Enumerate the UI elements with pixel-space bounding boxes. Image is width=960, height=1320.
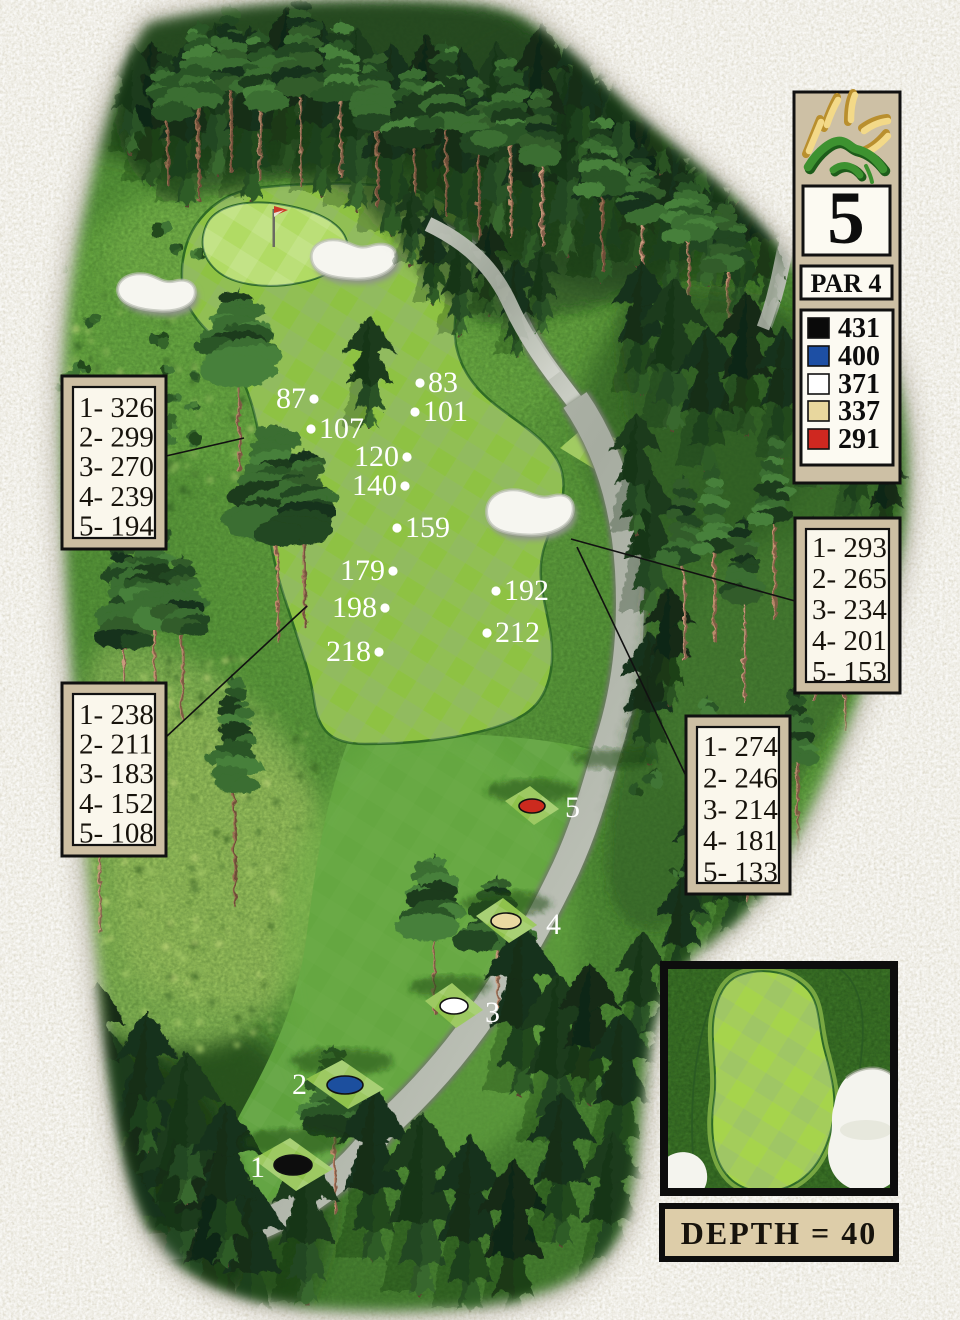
svg-text:192: 192 — [504, 574, 549, 607]
svg-text:159: 159 — [405, 511, 450, 544]
svg-text:1: 1 — [250, 1151, 265, 1184]
svg-text:3: 3 — [485, 996, 500, 1029]
svg-text:400: 400 — [838, 341, 880, 372]
svg-text:3- 183: 3- 183 — [79, 758, 154, 790]
svg-text:5: 5 — [827, 177, 865, 260]
svg-text:179: 179 — [340, 554, 385, 587]
svg-text:2: 2 — [292, 1068, 307, 1101]
svg-text:PAR 4: PAR 4 — [810, 269, 881, 298]
svg-text:4- 201: 4- 201 — [812, 625, 887, 657]
svg-text:4- 181: 4- 181 — [703, 825, 778, 857]
svg-text:5- 108: 5- 108 — [79, 817, 154, 849]
svg-text:2- 299: 2- 299 — [79, 422, 154, 454]
svg-text:2- 211: 2- 211 — [79, 729, 153, 761]
svg-text:1- 293: 1- 293 — [812, 532, 887, 564]
svg-text:1- 238: 1- 238 — [79, 699, 154, 731]
svg-text:4- 152: 4- 152 — [79, 788, 154, 820]
svg-text:87: 87 — [276, 382, 306, 415]
svg-text:291: 291 — [838, 424, 880, 455]
svg-text:2- 265: 2- 265 — [812, 563, 887, 595]
svg-text:140: 140 — [352, 469, 397, 502]
svg-text:101: 101 — [423, 395, 468, 428]
svg-text:337: 337 — [838, 396, 880, 427]
svg-text:3- 234: 3- 234 — [812, 594, 887, 626]
svg-text:2- 246: 2- 246 — [703, 762, 778, 794]
svg-text:5- 133: 5- 133 — [703, 857, 778, 889]
svg-text:431: 431 — [838, 313, 880, 344]
svg-text:3- 270: 3- 270 — [79, 451, 154, 483]
svg-text:5: 5 — [565, 791, 580, 824]
svg-text:198: 198 — [332, 591, 377, 624]
svg-text:5- 153: 5- 153 — [812, 656, 887, 688]
svg-text:218: 218 — [326, 635, 371, 668]
svg-text:4- 239: 4- 239 — [79, 481, 154, 513]
svg-text:212: 212 — [495, 616, 540, 649]
svg-text:3- 214: 3- 214 — [703, 794, 778, 826]
svg-text:4: 4 — [546, 908, 561, 941]
svg-text:DEPTH = 40: DEPTH = 40 — [681, 1215, 877, 1251]
svg-text:5- 194: 5- 194 — [79, 510, 154, 542]
svg-text:1- 326: 1- 326 — [79, 392, 154, 424]
svg-text:1- 274: 1- 274 — [703, 731, 778, 763]
